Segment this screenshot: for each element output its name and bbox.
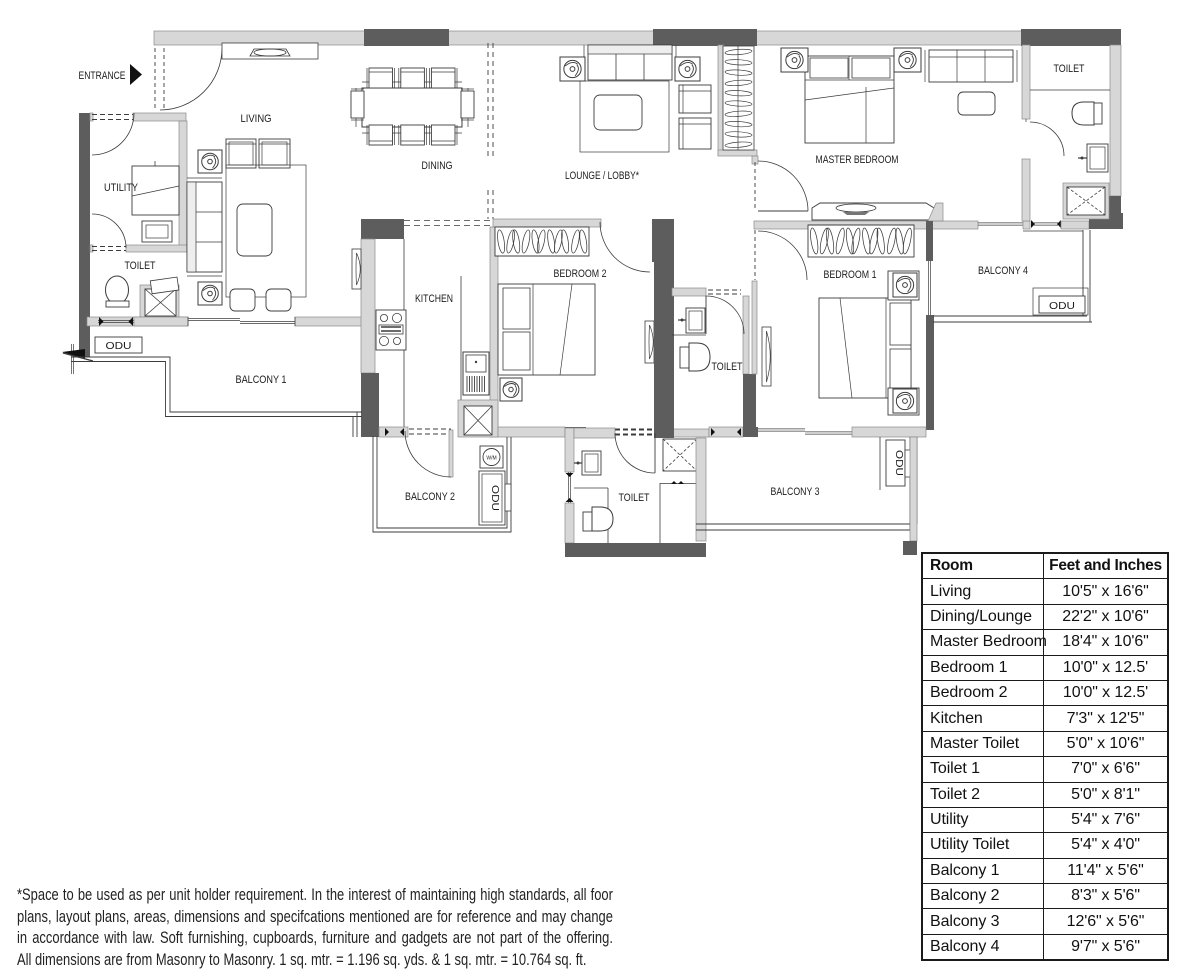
svg-text:UTILITY: UTILITY (104, 182, 139, 194)
svg-text:ODU: ODU (1049, 301, 1075, 312)
svg-text:ODU: ODU (893, 450, 904, 476)
svg-text:ODU: ODU (106, 341, 132, 352)
svg-text:LOUNGE / LOBBY*: LOUNGE / LOBBY* (565, 170, 640, 182)
svg-text:BALCONY 2: BALCONY 2 (405, 491, 455, 503)
svg-text:BALCONY 1: BALCONY 1 (236, 374, 287, 386)
svg-text:BEDROOM 1: BEDROOM 1 (824, 269, 877, 281)
svg-text:BEDROOM 2: BEDROOM 2 (554, 268, 607, 280)
svg-text:TOILET: TOILET (1054, 63, 1085, 75)
svg-text:BALCONY 3: BALCONY 3 (771, 486, 820, 498)
svg-text:LIVING: LIVING (241, 113, 272, 125)
svg-text:TOILET: TOILET (125, 260, 156, 272)
svg-text:TOILET: TOILET (619, 492, 650, 504)
svg-text:BALCONY 4: BALCONY 4 (978, 265, 1028, 277)
svg-text:DINING: DINING (422, 160, 453, 172)
svg-text:W/M: W/M (486, 456, 496, 462)
svg-text:MASTER BEDROOM: MASTER BEDROOM (816, 154, 899, 166)
svg-text:ENTRANCE: ENTRANCE (79, 70, 126, 82)
svg-text:TOILET: TOILET (712, 361, 743, 373)
svg-text:KITCHEN: KITCHEN (415, 293, 453, 305)
svg-text:ODU: ODU (489, 485, 500, 511)
